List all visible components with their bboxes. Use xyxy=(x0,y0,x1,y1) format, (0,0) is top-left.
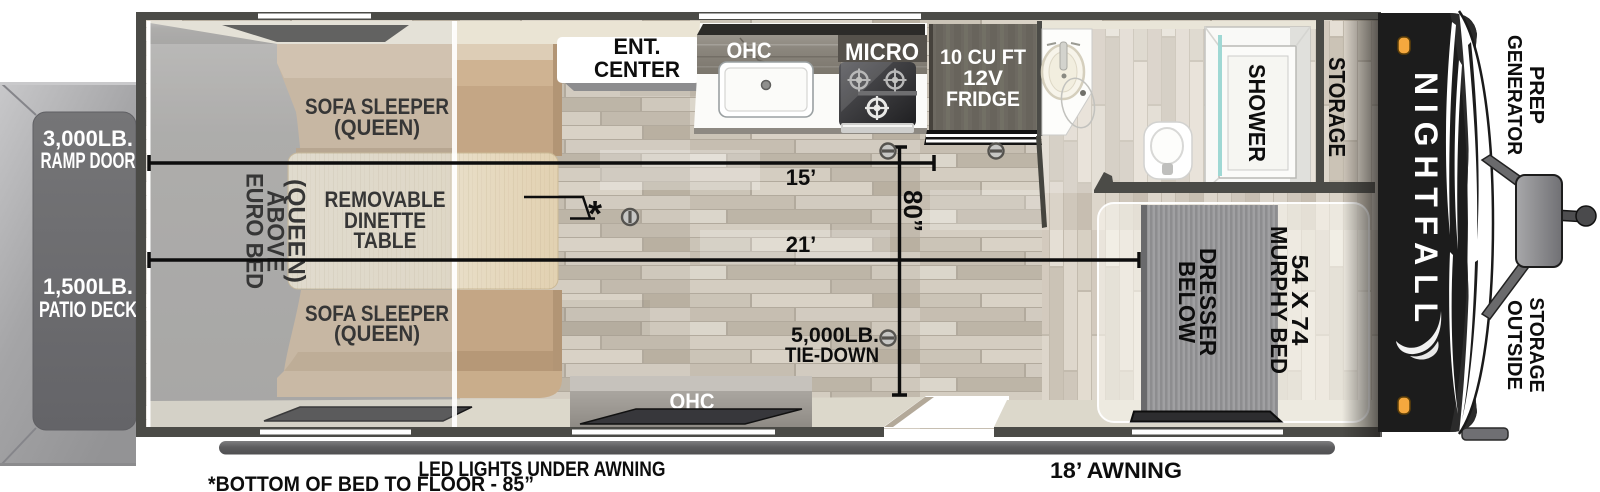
svg-text:TIE-DOWN: TIE-DOWN xyxy=(785,344,879,367)
svg-text:OUTSIDE: OUTSIDE xyxy=(1503,300,1525,390)
svg-text:STORAGE: STORAGE xyxy=(1525,298,1547,393)
svg-text:1,500LB.: 1,500LB. xyxy=(43,274,133,299)
svg-text:SHOWER: SHOWER xyxy=(1244,64,1270,162)
svg-text:18’ AWNING: 18’ AWNING xyxy=(1050,458,1182,483)
svg-text:PREP: PREP xyxy=(1525,66,1547,124)
svg-text:PATIO DECK: PATIO DECK xyxy=(39,297,137,322)
svg-text:*BOTTOM OF BED TO FLOOR - 85”: *BOTTOM OF BED TO FLOOR - 85” xyxy=(208,473,534,492)
svg-text:OHC: OHC xyxy=(727,38,772,63)
svg-text:*: * xyxy=(588,193,602,234)
svg-text:MURPHY BED: MURPHY BED xyxy=(1266,226,1292,374)
svg-text:12V: 12V xyxy=(963,67,1003,90)
svg-text:GENERATOR: GENERATOR xyxy=(1503,35,1525,156)
svg-text:80”: 80” xyxy=(898,190,928,232)
svg-text:NIGHTFALL: NIGHTFALL xyxy=(1408,72,1444,322)
svg-text:RAMP DOOR: RAMP DOOR xyxy=(41,148,136,173)
svg-text:FRIDGE: FRIDGE xyxy=(946,88,1020,111)
svg-text:ENT.: ENT. xyxy=(614,34,661,59)
svg-text:BELOW: BELOW xyxy=(1174,261,1200,343)
svg-text:15’: 15’ xyxy=(786,165,817,190)
svg-text:CENTER: CENTER xyxy=(594,57,680,82)
svg-text:10 CU FT: 10 CU FT xyxy=(940,46,1026,69)
svg-text:21’: 21’ xyxy=(786,232,817,257)
svg-text:MICRO: MICRO xyxy=(845,39,919,66)
